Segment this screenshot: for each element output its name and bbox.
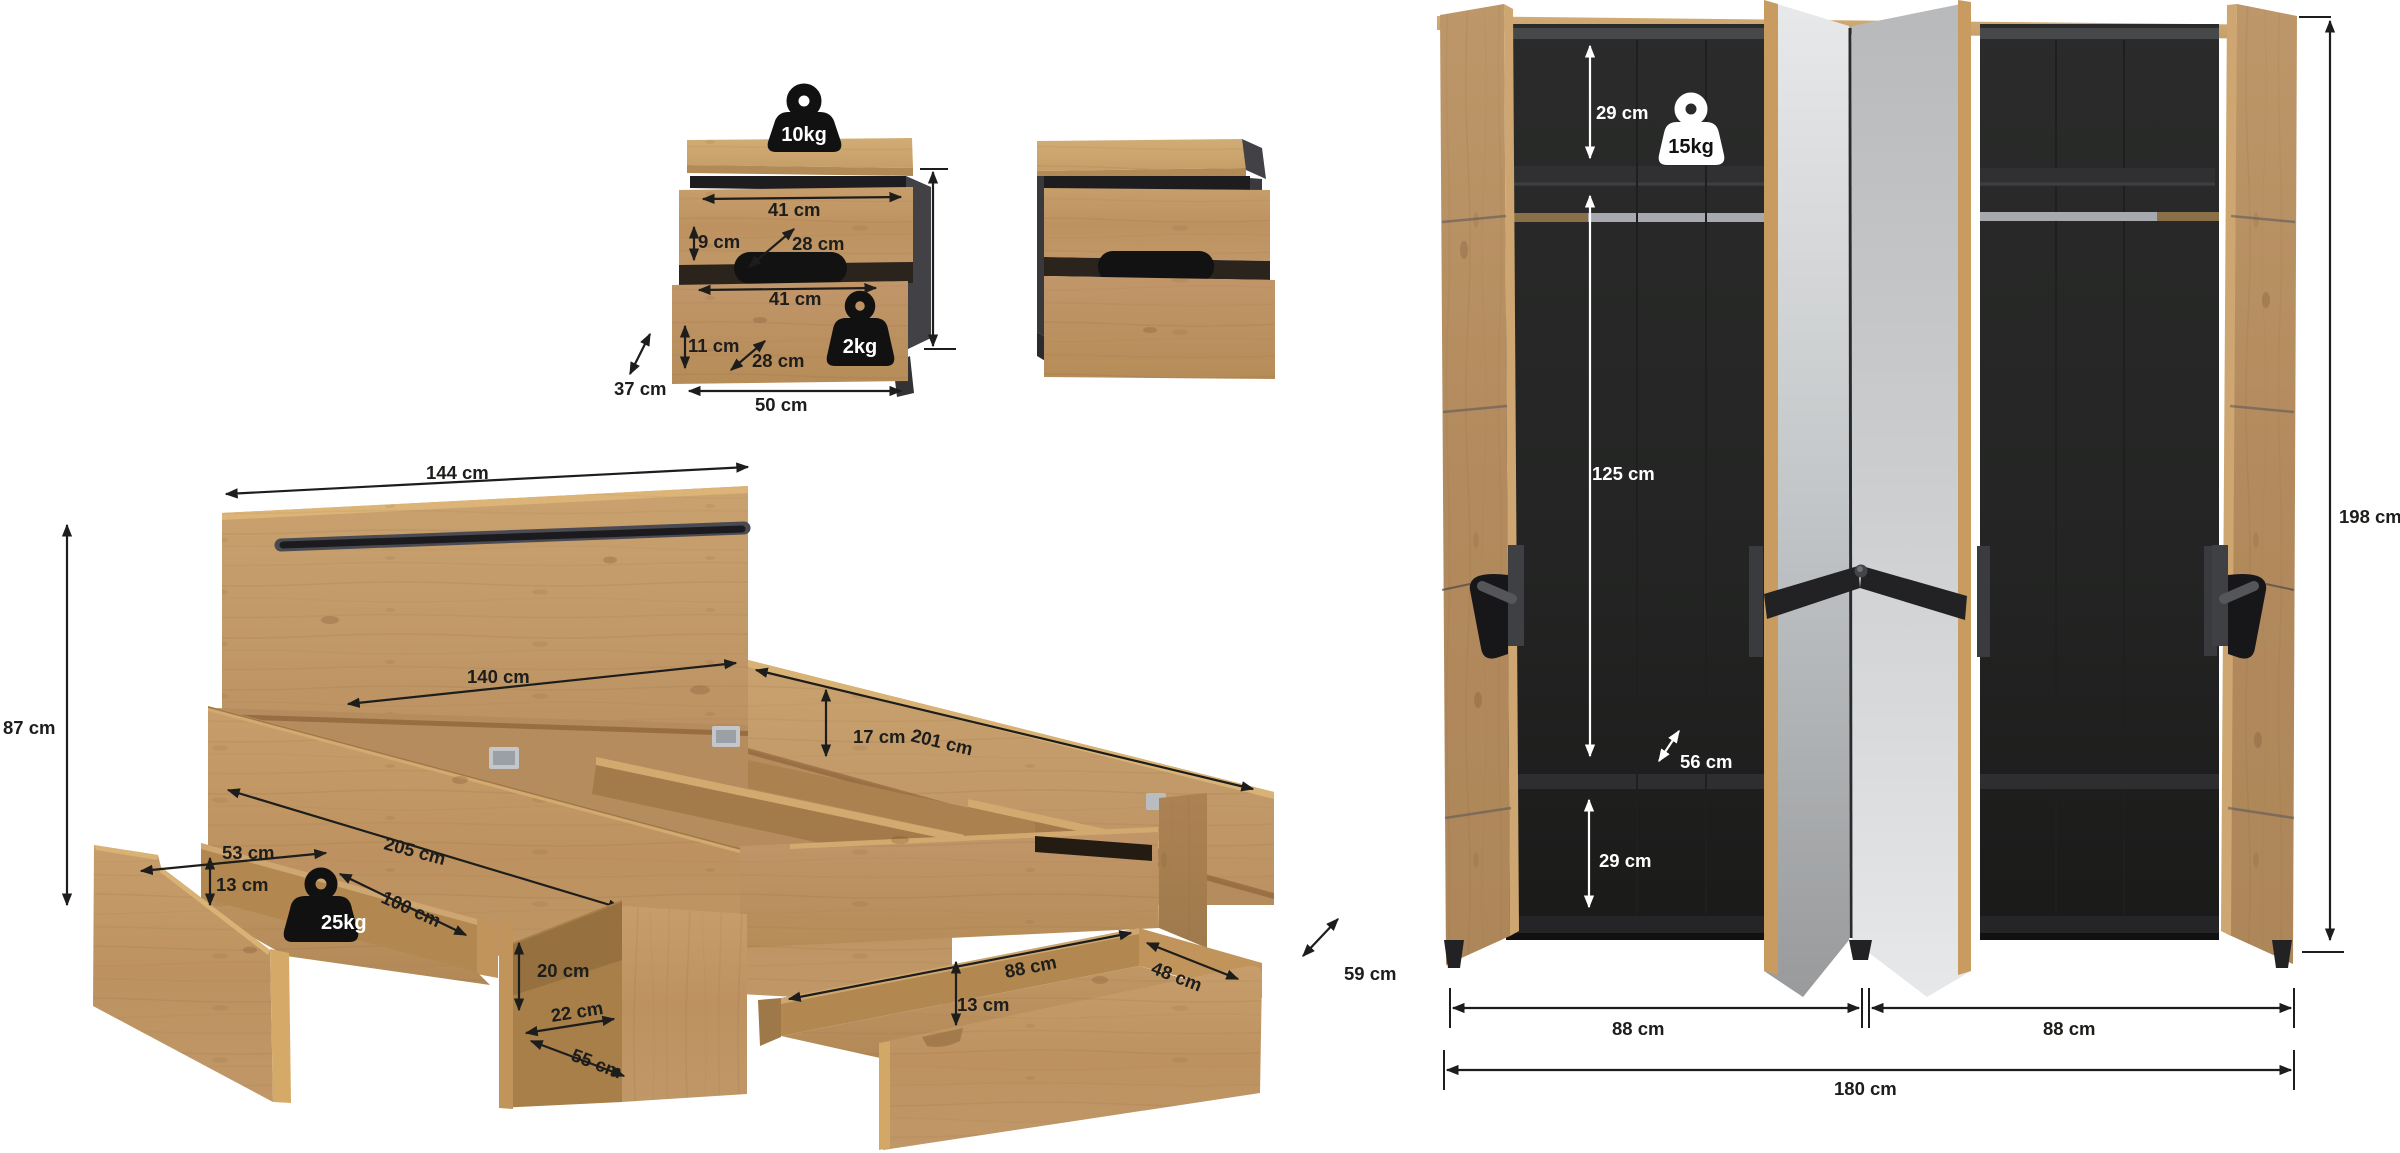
svg-text:125 cm: 125 cm xyxy=(1592,463,1655,484)
svg-text:198 cm: 198 cm xyxy=(2339,506,2400,527)
svg-text:59 cm: 59 cm xyxy=(1344,963,1396,984)
svg-text:53 cm: 53 cm xyxy=(222,842,274,863)
svg-text:28 cm: 28 cm xyxy=(792,233,844,254)
svg-text:37 cm: 37 cm xyxy=(614,378,666,399)
svg-text:180 cm: 180 cm xyxy=(1834,1078,1897,1099)
svg-text:41 cm: 41 cm xyxy=(768,199,820,220)
svg-text:140 cm: 140 cm xyxy=(467,666,530,687)
svg-text:13 cm: 13 cm xyxy=(957,994,1009,1015)
svg-text:144 cm: 144 cm xyxy=(426,462,489,483)
svg-text:13 cm: 13 cm xyxy=(216,874,268,895)
svg-text:87 cm: 87 cm xyxy=(3,717,55,738)
svg-text:29 cm: 29 cm xyxy=(1599,850,1651,871)
svg-text:88 cm: 88 cm xyxy=(2043,1018,2095,1039)
svg-text:41 cm: 41 cm xyxy=(769,288,821,309)
svg-text:15kg: 15kg xyxy=(1668,136,1714,158)
svg-text:20 cm: 20 cm xyxy=(537,960,589,981)
svg-text:2kg: 2kg xyxy=(843,336,877,358)
svg-text:88 cm: 88 cm xyxy=(1612,1018,1664,1039)
svg-text:56 cm: 56 cm xyxy=(1680,751,1732,772)
svg-text:11 cm: 11 cm xyxy=(688,335,739,356)
svg-text:25kg: 25kg xyxy=(321,912,367,934)
svg-text:28 cm: 28 cm xyxy=(752,350,804,371)
svg-text:29 cm: 29 cm xyxy=(1596,102,1648,123)
svg-text:10kg: 10kg xyxy=(781,124,827,146)
svg-text:9 cm: 9 cm xyxy=(698,231,740,252)
svg-text:50 cm: 50 cm xyxy=(755,394,807,415)
svg-text:17 cm: 17 cm xyxy=(853,726,905,747)
